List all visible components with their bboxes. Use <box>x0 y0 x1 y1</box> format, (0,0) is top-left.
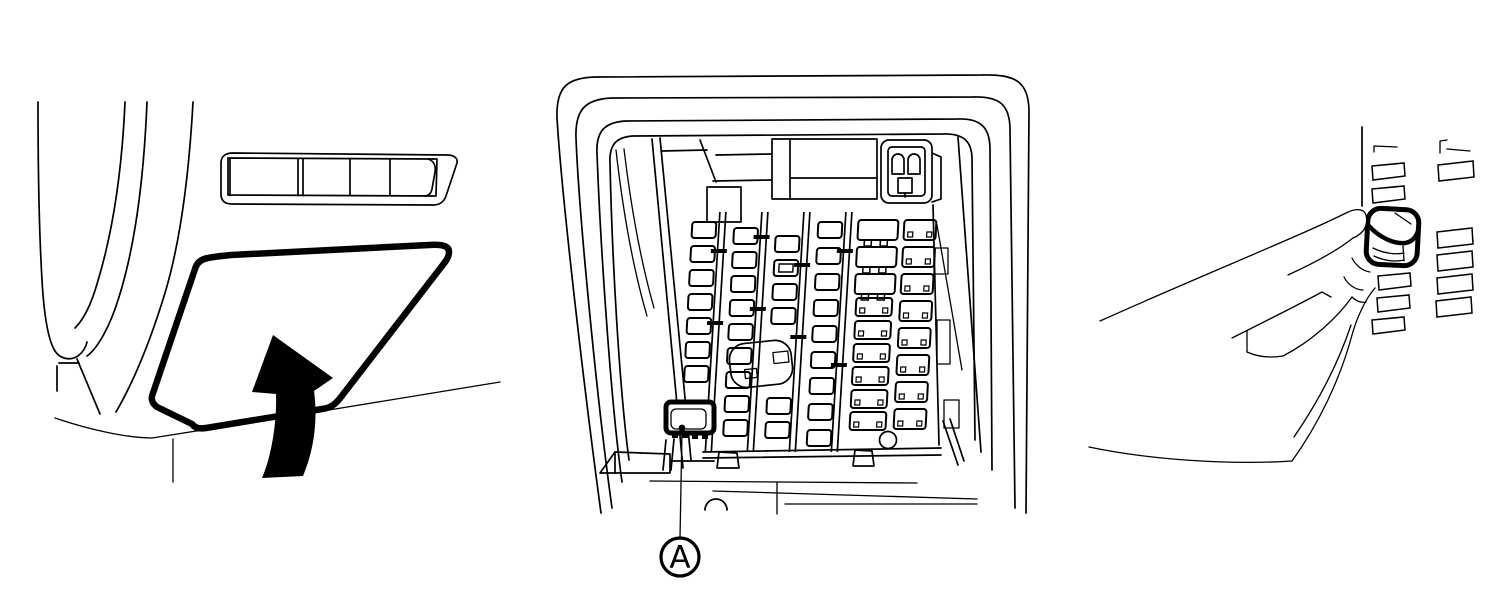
fuse <box>1372 317 1405 334</box>
fuse-contact <box>854 422 859 427</box>
fuse-rail <box>747 212 762 452</box>
illustration-page: A <box>0 0 1502 592</box>
spare-fuse <box>774 260 799 276</box>
fuse-contact <box>901 367 906 372</box>
fuse <box>1372 163 1405 180</box>
a-pillar-trim <box>38 102 193 414</box>
fuse-puller-tool <box>1366 208 1420 267</box>
fuse <box>1372 186 1405 203</box>
fuse <box>1437 228 1473 248</box>
fuse <box>685 342 710 358</box>
fuse-contact <box>856 377 861 382</box>
hand <box>1089 210 1375 463</box>
fuse-contact <box>858 331 863 336</box>
fuse-contact <box>877 422 882 427</box>
connector-socket <box>881 140 941 203</box>
fuse-contact <box>857 354 862 359</box>
fuse <box>808 404 833 420</box>
fuse-contact <box>921 340 926 345</box>
relay <box>857 220 898 240</box>
fuse-contact <box>924 286 929 291</box>
fuse <box>818 222 843 238</box>
fuse-contact <box>908 232 913 237</box>
fuse <box>1377 295 1410 312</box>
fuse <box>771 308 796 324</box>
fuse <box>688 294 713 310</box>
fuse <box>728 324 753 340</box>
fuse-contact <box>880 354 885 359</box>
fuse-contact <box>879 377 884 382</box>
fuse <box>1437 251 1473 271</box>
fuse-contact <box>860 308 865 313</box>
relay <box>855 274 896 294</box>
spare-fuse-window <box>779 264 793 272</box>
fuse-rail <box>789 212 804 452</box>
fuse-contact <box>878 400 883 405</box>
fuse <box>807 430 832 446</box>
fuse <box>766 398 791 414</box>
side-vent <box>221 153 457 205</box>
fuse <box>775 236 800 252</box>
fuse-contact <box>905 286 910 291</box>
fuse <box>813 300 838 316</box>
fuse <box>772 284 797 300</box>
relay <box>856 247 897 267</box>
fuse-contact <box>855 400 860 405</box>
fuse-contact <box>917 421 922 426</box>
fuse <box>1436 297 1472 317</box>
fuse <box>809 378 834 394</box>
fuse <box>731 276 756 292</box>
fuse-box-illustration: A <box>557 75 1029 576</box>
fuse <box>812 326 837 342</box>
fuse-contact <box>898 421 903 426</box>
fuse-contact <box>918 394 923 399</box>
fuse <box>765 422 790 438</box>
stored-fuse-puller <box>666 402 714 439</box>
callout-a: A <box>661 425 699 576</box>
fuse <box>723 420 748 436</box>
fuse-rail <box>753 212 768 452</box>
fuse-instructions-figure: A <box>0 0 1502 592</box>
relay-block <box>661 139 877 222</box>
fuse <box>724 396 749 412</box>
hand-fill <box>1089 210 1366 462</box>
fuse <box>1437 274 1473 294</box>
fuse-contact <box>881 331 886 336</box>
fuse-contact <box>903 313 908 318</box>
fuse-contact <box>925 259 930 264</box>
fuse-contact <box>899 394 904 399</box>
fuse-grid <box>680 212 937 452</box>
fuse <box>689 270 714 286</box>
fuse-contact <box>883 308 888 313</box>
fuse-contact <box>922 313 927 318</box>
fuse <box>815 274 840 290</box>
fuse-contact <box>906 259 911 264</box>
callout-label: A <box>669 540 690 576</box>
cover-removal-illustration <box>38 102 500 482</box>
fuse <box>684 366 709 382</box>
fingertip-curl <box>1352 297 1366 302</box>
fuse <box>732 252 757 268</box>
fuse-removal-illustration <box>1089 127 1474 462</box>
fuse <box>686 318 711 334</box>
fuse-contact <box>920 367 925 372</box>
fuse <box>1378 273 1411 290</box>
fuse-contact <box>902 340 907 345</box>
fuse-slot-steps <box>1374 140 1470 153</box>
fuse-contact <box>927 232 932 237</box>
fuse <box>1438 161 1474 181</box>
fuse <box>692 222 717 238</box>
fuse <box>690 246 715 262</box>
